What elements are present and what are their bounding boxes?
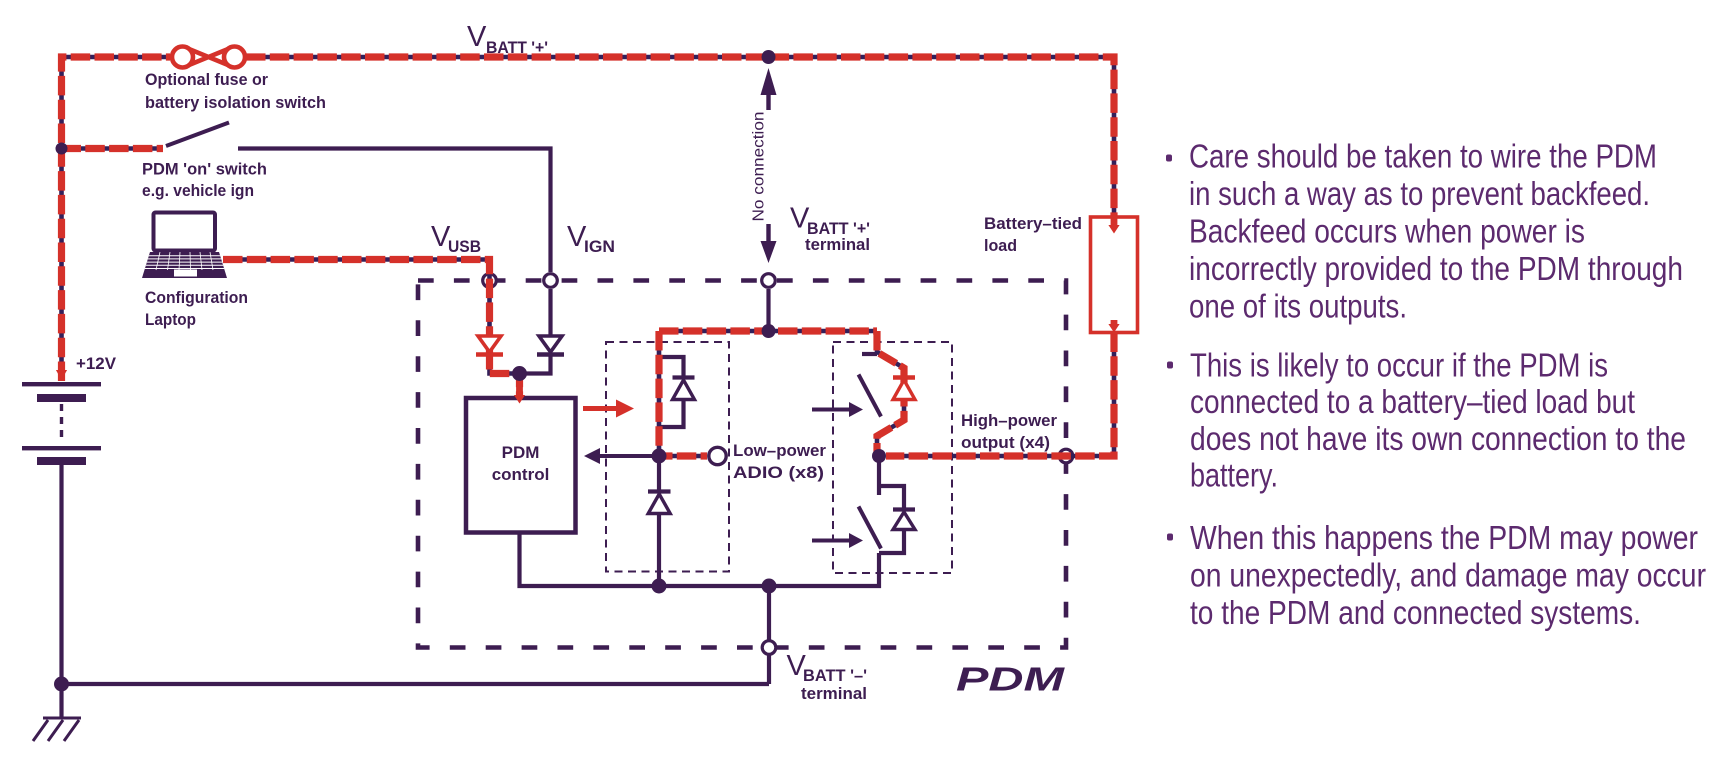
svg-text:does not have its own connecti: does not have its own connection to the [1190,420,1686,457]
svg-text:load: load [984,236,1017,255]
svg-text:Laptop: Laptop [145,310,196,329]
svg-text:terminal: terminal [805,235,870,254]
svg-text:No connection: No connection [751,112,768,222]
svg-text:output (x4): output (x4) [961,433,1050,452]
svg-text:Configuration: Configuration [145,288,248,307]
svg-text:PDM: PDM [502,443,540,462]
svg-text:This is likely to occur if the: This is likely to occur if the PDM is [1190,347,1608,384]
svg-text:incorrectly provided to the PD: incorrectly provided to the PDM through [1189,250,1683,287]
svg-text:Battery–tied: Battery–tied [984,214,1082,233]
svg-text:on unexpectedly, and damage ma: on unexpectedly, and damage may occur [1190,557,1706,594]
svg-text:connected to a battery–tied lo: connected to a battery–tied load but [1190,383,1635,420]
svg-text:PDM: PDM [956,661,1066,698]
svg-text:e.g. vehicle ign: e.g. vehicle ign [142,181,254,200]
svg-text:Backfeed occurs when power is: Backfeed occurs when power is [1189,213,1585,250]
svg-text:battery.: battery. [1190,456,1278,493]
svg-text:When this happens the PDM may: When this happens the PDM may power [1190,519,1698,556]
svg-text:Low–power: Low–power [733,441,826,460]
svg-text:BATT '–': BATT '–' [803,666,867,685]
svg-text:terminal: terminal [801,684,867,703]
svg-text:battery isolation switch: battery isolation switch [145,93,326,112]
svg-text:IGN: IGN [584,237,615,256]
svg-text:control: control [492,465,550,484]
svg-text:+12V: +12V [76,354,117,373]
svg-text:USB: USB [448,237,481,256]
svg-text:ADIO (x8): ADIO (x8) [733,463,824,482]
svg-text:Care should be taken to wire t: Care should be taken to wire the PDM [1189,138,1657,175]
svg-text:V: V [467,21,487,53]
svg-text:High–power: High–power [961,411,1057,430]
svg-text:in such a way as to prevent ba: in such a way as to prevent backfeed. [1189,175,1650,212]
svg-text:PDM 'on' switch: PDM 'on' switch [142,160,267,179]
svg-text:to the PDM and connected syste: to the PDM and connected systems. [1190,594,1641,631]
svg-text:BATT '+': BATT '+' [486,38,548,57]
svg-text:Optional fuse or: Optional fuse or [145,70,268,89]
svg-text:one of its outputs.: one of its outputs. [1189,287,1407,324]
